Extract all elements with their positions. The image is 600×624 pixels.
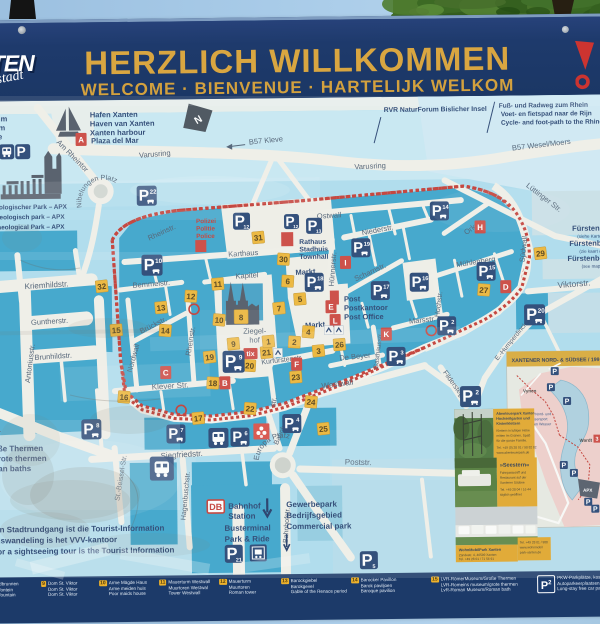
svg-text:Archäologischer Park – APX: Archäologischer Park – APX <box>0 204 68 212</box>
svg-text:park-xanten.de: park-xanten.de <box>520 550 542 554</box>
svg-text:3: 3 <box>595 437 598 443</box>
svg-text:Plaza del Mar: Plaza del Mar <box>91 136 139 146</box>
svg-text:22: 22 <box>150 190 157 196</box>
svg-text:Rathaus: Rathaus <box>299 239 326 246</box>
svg-text:Stadhuis: Stadhuis <box>299 246 328 253</box>
svg-text:17: 17 <box>383 285 389 291</box>
svg-text:16: 16 <box>119 393 129 403</box>
svg-text:Kapitel: Kapitel <box>235 270 259 280</box>
svg-text:P: P <box>552 369 557 376</box>
svg-text:P: P <box>593 506 598 513</box>
svg-text:Abenteuerpark Xanten: Abenteuerpark Xanten <box>496 411 534 415</box>
svg-text:B: B <box>222 379 228 388</box>
svg-text:P: P <box>586 499 591 506</box>
svg-text:Tel. +49 28 01 / 71 56 91: Tel. +49 28 01 / 71 56 91 <box>459 557 494 561</box>
svg-text:WohnMobilPark Xanten: WohnMobilPark Xanten <box>459 548 502 552</box>
svg-text:24: 24 <box>306 397 316 407</box>
svg-text:Commercial park: Commercial park <box>286 521 352 531</box>
svg-text:P: P <box>139 188 150 205</box>
svg-text:Post: Post <box>344 294 361 303</box>
svg-text:www.wohnmobil: www.wohnmobil <box>520 545 543 549</box>
svg-text:6: 6 <box>244 431 247 437</box>
svg-text:Fürstenberg: Fürstenberg <box>572 223 600 233</box>
svg-text:Tel. +49 28 01 / 988: Tel. +49 28 01 / 988 <box>520 540 548 544</box>
svg-text:Kistenklettern: Kistenklettern <box>496 422 520 426</box>
svg-text:13: 13 <box>316 229 322 235</box>
svg-text:C: C <box>163 368 169 377</box>
svg-text:Park & Ride: Park & Ride <box>225 534 271 544</box>
svg-text:P: P <box>17 144 26 159</box>
svg-text:hof: hof <box>249 335 260 344</box>
svg-text:32: 32 <box>97 282 107 292</box>
svg-text:12: 12 <box>244 225 250 231</box>
svg-text:P: P <box>561 462 566 469</box>
svg-text:Fürstenberg: Fürstenberg <box>569 238 600 248</box>
svg-text:16: 16 <box>422 276 428 282</box>
svg-text:P: P <box>83 421 94 438</box>
svg-text:12: 12 <box>186 292 196 302</box>
svg-text:P: P <box>361 551 372 570</box>
svg-text:Karthaus: Karthaus <box>228 248 259 259</box>
svg-text:F: F <box>294 360 299 369</box>
svg-text:I: I <box>344 258 346 267</box>
svg-text:3: 3 <box>401 350 404 356</box>
svg-text:(see map): (see map) <box>582 264 600 269</box>
svg-text:Postkantoor: Postkantoor <box>344 303 388 312</box>
svg-text:19: 19 <box>364 242 370 248</box>
svg-text:Romeins museum/grote thermen: Romeins museum/grote thermen <box>0 454 47 464</box>
svg-text:L: L <box>333 317 338 326</box>
svg-text:2: 2 <box>451 320 454 326</box>
svg-text:»Seestern«: »Seestern« <box>500 462 529 468</box>
svg-text:14: 14 <box>160 326 170 336</box>
svg-text:Station: Station <box>228 512 255 521</box>
svg-text:Gewerbepark: Gewerbepark <box>286 500 337 510</box>
svg-text:Hochseilgarten und: Hochseilgarten und <box>496 416 530 420</box>
svg-text:tix: tix <box>246 351 254 358</box>
svg-text:17: 17 <box>193 414 203 424</box>
svg-text:Post Office: Post Office <box>344 312 384 321</box>
svg-text:Townhall: Townhall <box>299 254 328 261</box>
svg-text:15: 15 <box>489 265 495 271</box>
svg-text:A: A <box>78 135 84 144</box>
svg-text:Vynen: Vynen <box>523 388 537 393</box>
svg-text:K: K <box>383 330 389 339</box>
svg-text:20: 20 <box>245 361 255 371</box>
svg-text:25: 25 <box>319 424 329 434</box>
svg-text:14: 14 <box>442 205 449 211</box>
svg-text:Poststr.: Poststr. <box>345 458 372 468</box>
svg-text:Xantener Südsee: Xantener Südsee <box>500 480 525 484</box>
svg-text:ntre: ntre <box>0 132 2 141</box>
svg-text:Politie: Politie <box>196 225 215 232</box>
svg-text:13: 13 <box>156 303 166 313</box>
svg-text:P: P <box>565 398 570 405</box>
svg-text:Fahrgastschiff und: Fahrgastschiff und <box>500 470 526 474</box>
svg-text:Cycle- and foot-path to the Rh: Cycle- and foot-path to the Rhine <box>501 119 600 127</box>
svg-text:18: 18 <box>208 379 218 389</box>
svg-text:21: 21 <box>236 558 242 564</box>
svg-text:27: 27 <box>479 286 489 296</box>
svg-text:5: 5 <box>372 564 375 570</box>
svg-text:Fürstenberg: Fürstenberg <box>567 253 600 263</box>
svg-text:Tel. +49 (0) 28 01 / 98 82 82: Tel. +49 (0) 28 01 / 98 82 82 <box>497 445 537 449</box>
svg-text:DB: DB <box>209 502 223 512</box>
svg-text:str.: str. <box>268 396 279 407</box>
svg-text:RVR NaturForum Bislicher Insel: RVR NaturForum Bislicher Insel <box>384 106 487 114</box>
svg-text:entrum: entrum <box>0 114 8 123</box>
svg-text:H: H <box>477 223 483 232</box>
svg-text:26: 26 <box>335 340 345 350</box>
svg-text:10: 10 <box>155 258 163 265</box>
svg-text:Bahnhof: Bahnhof <box>228 501 261 510</box>
svg-text:29: 29 <box>536 249 546 259</box>
svg-text:R.Museum/Roman baths: R.Museum/Roman baths <box>0 464 32 474</box>
svg-text:ntrum: ntrum <box>0 123 6 132</box>
svg-text:Fuß- und Radweg zum Rhein: Fuß- und Radweg zum Rhein <box>499 102 588 110</box>
svg-text:D: D <box>503 283 509 292</box>
svg-text:18: 18 <box>317 276 323 282</box>
svg-text:20: 20 <box>538 308 546 315</box>
svg-text:21: 21 <box>262 348 272 358</box>
svg-text:de stadswandeling is het VVV-k: de stadswandeling is het VVV-kantoor <box>0 535 117 546</box>
svg-text:12: 12 <box>293 224 299 229</box>
svg-text:XANTENER NORD- & SÜDSEE / 199: XANTENER NORD- & SÜDSEE / 199 <box>512 356 600 364</box>
svg-text:Tel. +49 28 04 / 16 44: Tel. +49 28 04 / 16 44 <box>500 487 531 491</box>
svg-text:P: P <box>572 470 577 477</box>
svg-text:RömerMuseum/Große Thermen: RömerMuseum/Große Thermen <box>0 444 43 454</box>
svg-text:Busterminal: Busterminal <box>224 523 270 533</box>
svg-text:täglich geöffnet: täglich geöffnet <box>500 492 522 496</box>
svg-text:Klettern in luftiger Höhe: Klettern in luftiger Höhe <box>496 428 530 432</box>
svg-text:Polizei: Polizei <box>196 218 216 225</box>
svg-text:Police: Police <box>196 233 215 240</box>
svg-text:Wardt: Wardt <box>580 438 593 443</box>
svg-text:23: 23 <box>291 373 301 383</box>
svg-text:15: 15 <box>111 326 121 336</box>
svg-text:2: 2 <box>475 389 479 396</box>
svg-text:Restaurant auf der: Restaurant auf der <box>500 475 527 479</box>
svg-text:Varusring: Varusring <box>354 161 386 171</box>
svg-text:APX: APX <box>583 488 592 493</box>
svg-text:Archeologisch park – APX: Archeologisch park – APX <box>0 214 65 222</box>
svg-text:9: 9 <box>239 354 243 361</box>
svg-text:11: 11 <box>213 280 223 290</box>
svg-text:für die ganze Familie.: für die ganze Familie. <box>497 438 528 442</box>
svg-text:30: 30 <box>279 255 289 265</box>
svg-text:19: 19 <box>205 352 215 362</box>
svg-text:Bedrijfsgebied: Bedrijfsgebied <box>286 511 342 521</box>
svg-text:P: P <box>549 385 554 392</box>
svg-text:E: E <box>328 303 334 312</box>
svg-text:8: 8 <box>239 313 244 322</box>
svg-text:Archaeological Park – APX: Archaeological Park – APX <box>0 224 65 232</box>
svg-text:mitten im Grünen, Spaß: mitten im Grünen, Spaß <box>496 433 530 437</box>
svg-text:Ziegel-: Ziegel- <box>243 326 267 335</box>
svg-text:www.abenteuerpark.de: www.abenteuerpark.de <box>497 450 530 454</box>
svg-text:Voet- en fietspad naar de Rijn: Voet- en fietspad naar de Rijn <box>501 110 592 118</box>
svg-text:7: 7 <box>180 428 183 434</box>
svg-text:22: 22 <box>245 404 255 414</box>
svg-text:31: 31 <box>253 233 263 243</box>
svg-text:10: 10 <box>214 316 224 326</box>
